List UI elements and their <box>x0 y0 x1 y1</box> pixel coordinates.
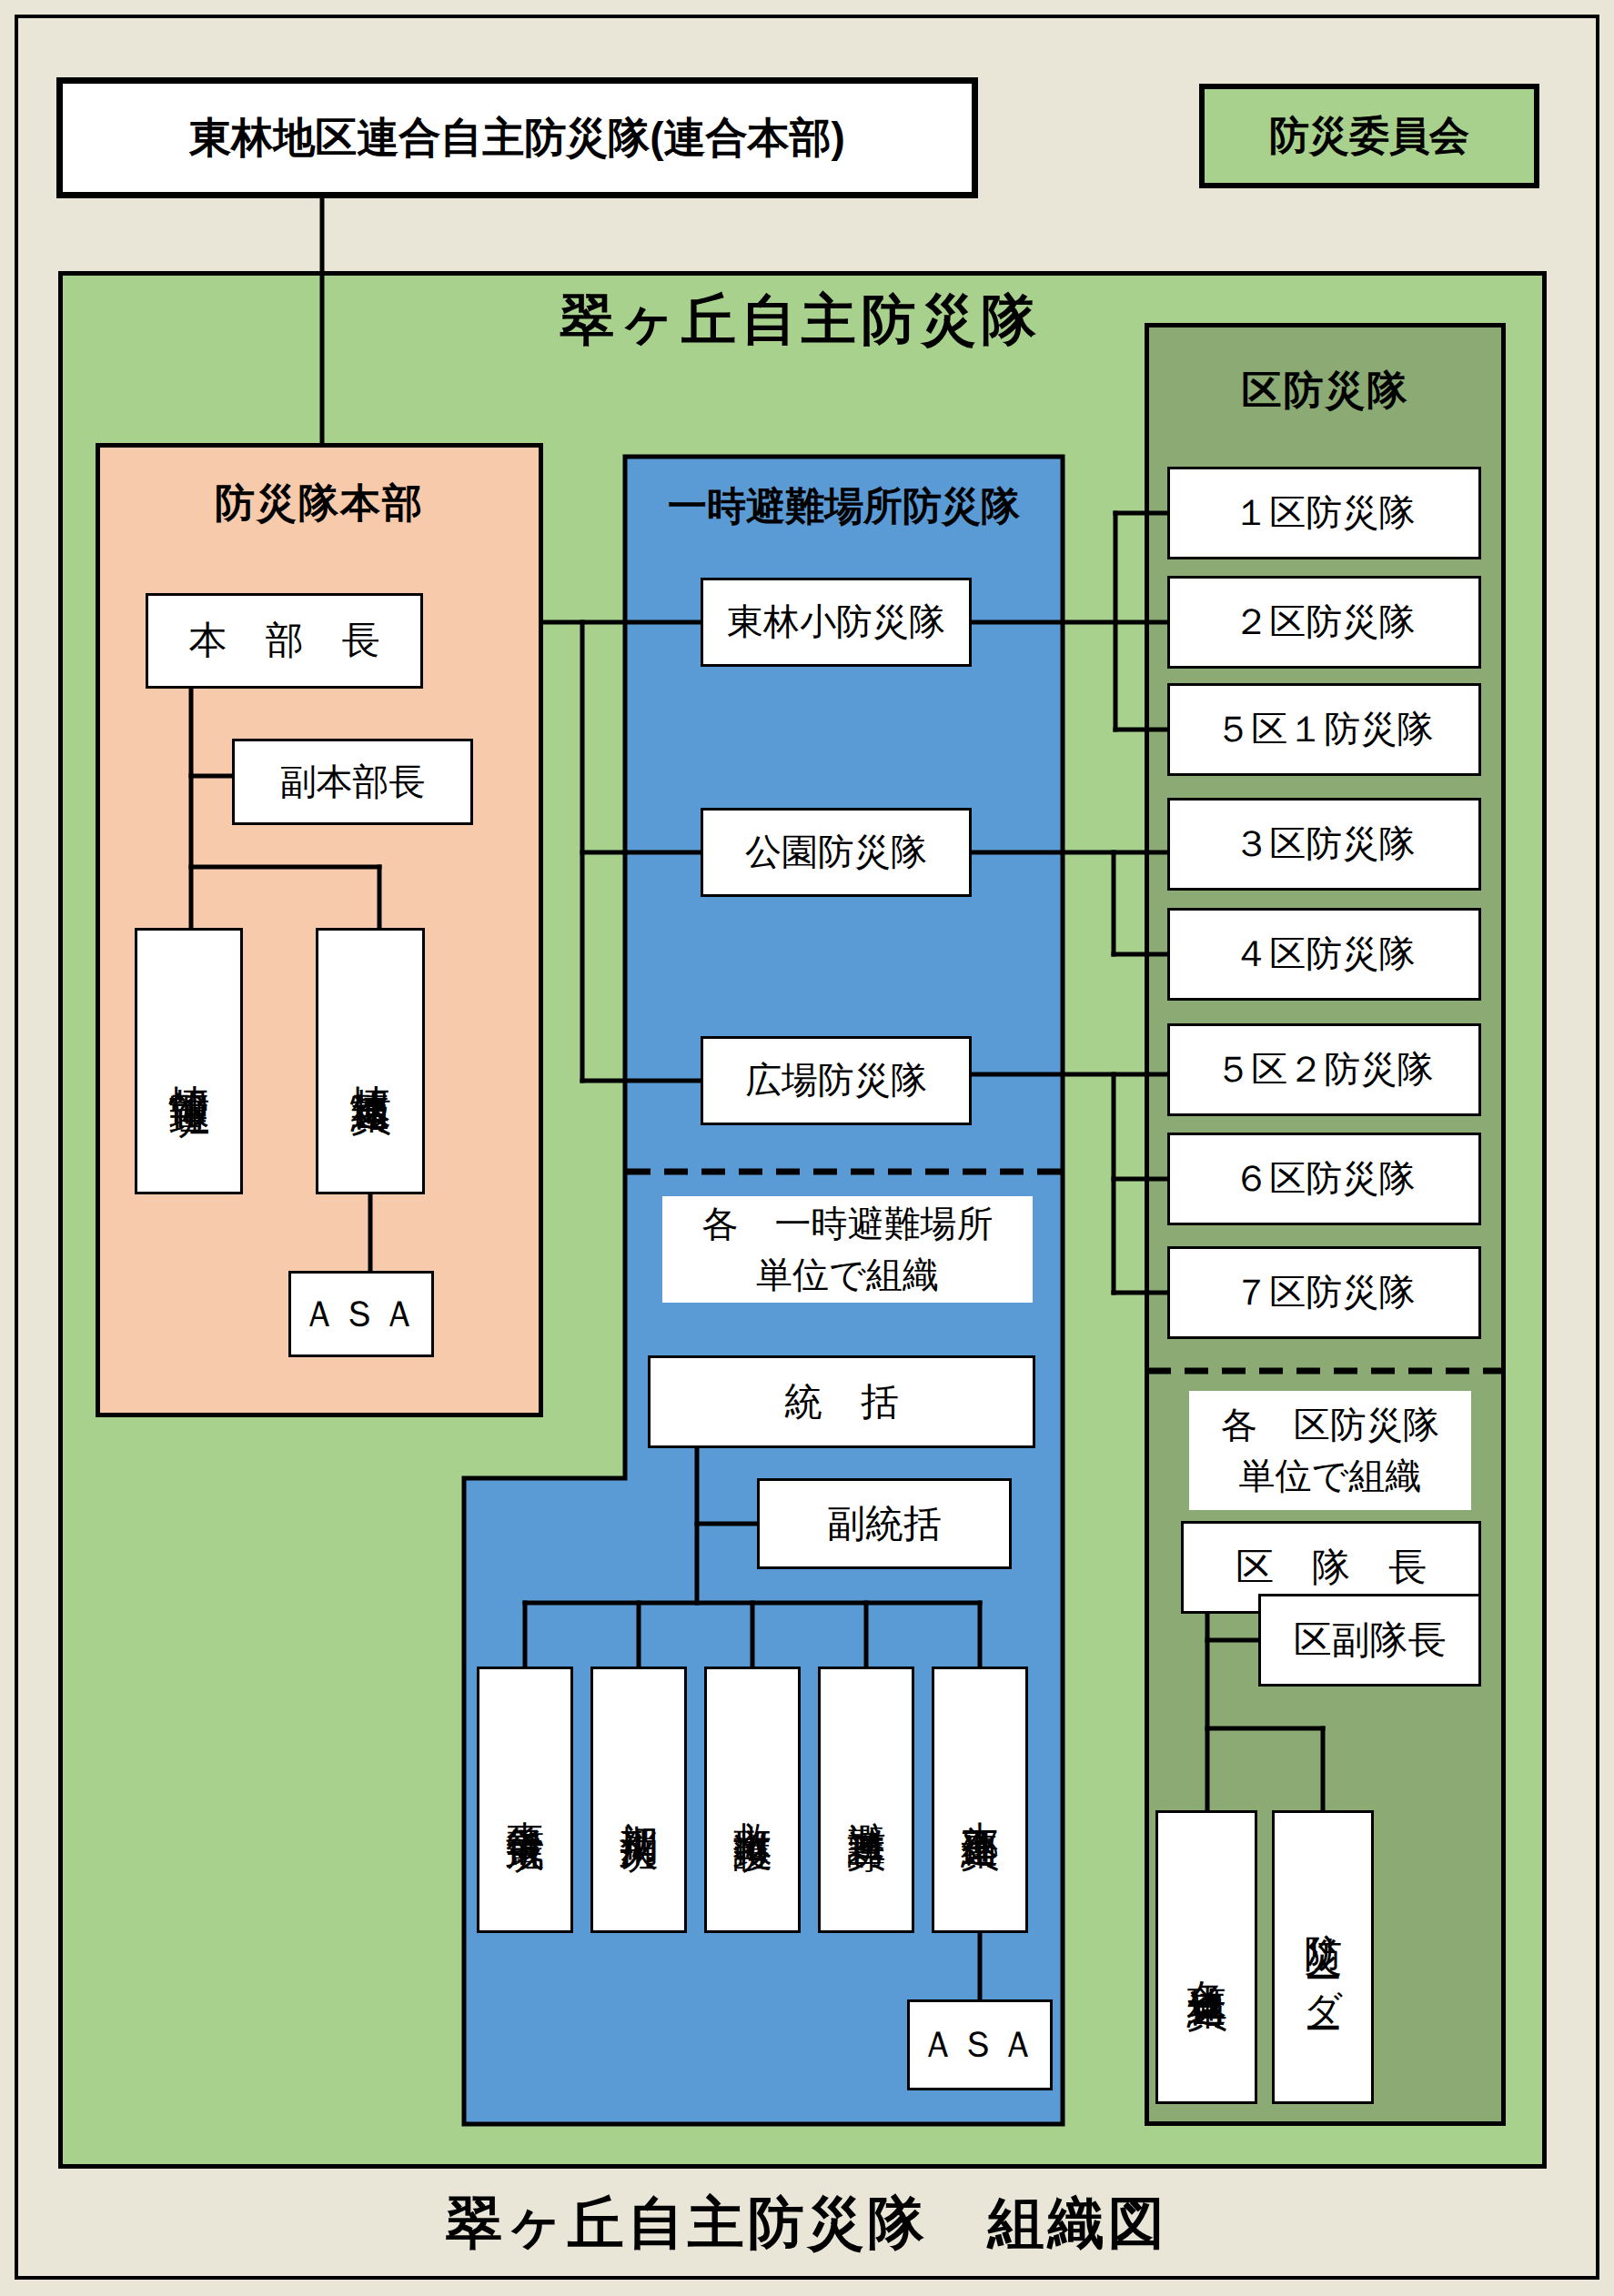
district-title: 区防災隊 <box>1145 364 1506 418</box>
hq-info-liaison-box: 情報連絡員 <box>316 928 425 1194</box>
shelter-team-renraku-box: 本部連絡員 <box>932 1667 1028 1933</box>
shelter-team-shoka-box: 初期消火班 <box>590 1667 687 1933</box>
shelter-deputy-box: 副統括 <box>757 1478 1012 1569</box>
shelter-title: 一時避難場所防災隊 <box>625 480 1063 533</box>
district-unit-5-1-label: ５区１防災隊 <box>1216 709 1434 750</box>
shelter-team-renraku-label: 本部連絡員 <box>958 1791 1002 1809</box>
union-hq-label: 東林地区連合自主防災隊(連合本部) <box>189 114 845 162</box>
district-note-line1: 各 区防災隊 <box>1221 1400 1439 1451</box>
district-unit-7-label: ７区防災隊 <box>1234 1272 1416 1314</box>
district-bousai-leader-label: 防災リーダー <box>1301 1903 1345 2012</box>
district-unit-2-box: ２区防災隊 <box>1167 576 1481 669</box>
hq-deputy-label: 副本部長 <box>280 761 426 803</box>
union-hq-box: 東林地区連合自主防災隊(連合本部) <box>56 77 978 198</box>
shelter-unit-park-label: 公園防災隊 <box>745 831 927 873</box>
hq-deputy-box: 副本部長 <box>232 739 473 825</box>
district-unit-1-label: １区防災隊 <box>1234 492 1416 534</box>
district-unit-4-label: ４区防災隊 <box>1234 933 1416 975</box>
district-note-line2: 単位で組織 <box>1239 1451 1422 1502</box>
shelter-team-keikai-label: 事後警戒班 <box>503 1791 547 1809</box>
hq-info-management-label: 情報管理班 <box>166 1052 212 1071</box>
district-unit-5-2-label: ５区２防災隊 <box>1216 1049 1434 1091</box>
shelter-unit-torin-box: 東林小防災隊 <box>701 578 972 667</box>
main-title: 翠ヶ丘自主防災隊 <box>273 284 1328 357</box>
district-unit-5-2-box: ５区２防災隊 <box>1167 1023 1481 1116</box>
shelter-team-shoka-label: 初期消火班 <box>617 1791 661 1809</box>
district-liaison-label: 各班連絡員 <box>1184 1949 1230 1967</box>
shelter-leader-label: 統 括 <box>784 1380 899 1424</box>
district-deputy-box: 区副隊長 <box>1258 1594 1481 1687</box>
hq-chief-label: 本 部 長 <box>189 619 380 662</box>
bottom-caption: 翠ヶ丘自主防災隊 組織図 <box>261 2185 1353 2261</box>
district-unit-3-label: ３区防災隊 <box>1234 823 1416 865</box>
hq-chief-box: 本 部 長 <box>146 593 423 689</box>
shelter-unit-plaza-label: 広場防災隊 <box>745 1060 927 1102</box>
shelter-note-line2: 単位で組織 <box>756 1250 939 1301</box>
hq-asa-box: ＡＳＡ <box>288 1271 434 1357</box>
shelter-note-line1: 各 一時避難場所 <box>702 1199 994 1250</box>
district-unit-6-box: ６区防災隊 <box>1167 1133 1481 1225</box>
hq-info-liaison-label: 情報連絡員 <box>348 1052 394 1071</box>
shelter-team-keikai-box: 事後警戒班 <box>477 1667 573 1933</box>
shelter-asa-box: ＡＳＡ <box>907 1999 1053 2090</box>
hq-asa-label: ＡＳＡ <box>301 1294 421 1335</box>
district-note-box: 各 区防災隊 単位で組織 <box>1189 1391 1471 1510</box>
hq-info-management-box: 情報管理班 <box>135 928 243 1194</box>
shelter-unit-plaza-box: 広場防災隊 <box>701 1036 972 1125</box>
committee-label: 防災委員会 <box>1269 113 1469 159</box>
shelter-note-box: 各 一時避難場所 単位で組織 <box>662 1196 1033 1303</box>
district-unit-6-label: ６区防災隊 <box>1234 1158 1416 1200</box>
district-deputy-label: 区副隊長 <box>1294 1618 1447 1662</box>
shelter-unit-park-box: 公園防災隊 <box>701 808 972 897</box>
shelter-team-kyugo-box: 救出救護班 <box>704 1667 801 1933</box>
district-unit-5-1-box: ５区１防災隊 <box>1167 683 1481 776</box>
district-bousai-leader-box: 防災リーダー <box>1272 1810 1374 2104</box>
district-unit-3-box: ３区防災隊 <box>1167 798 1481 891</box>
committee-box: 防災委員会 <box>1199 84 1539 188</box>
shelter-unit-torin-label: 東林小防災隊 <box>727 601 945 643</box>
shelter-team-kyugo-label: 救出救護班 <box>731 1791 774 1809</box>
district-unit-2-label: ２区防災隊 <box>1234 601 1416 643</box>
org-chart-page: 東林地区連合自主防災隊(連合本部) 防災委員会 翠ヶ丘自主防災隊 防災隊本部 本… <box>0 0 1614 2296</box>
shelter-leader-box: 統 括 <box>648 1355 1035 1448</box>
shelter-asa-label: ＡＳＡ <box>920 2024 1040 2066</box>
district-unit-7-box: ７区防災隊 <box>1167 1246 1481 1339</box>
district-liaison-box: 各班連絡員 <box>1155 1810 1257 2104</box>
district-unit-4-box: ４区防災隊 <box>1167 908 1481 1001</box>
shelter-team-yudo-label: 避難誘導員 <box>844 1791 888 1809</box>
shelter-team-yudo-box: 避難誘導員 <box>818 1667 914 1933</box>
district-leader-label: 区 隊 長 <box>1236 1546 1427 1589</box>
district-unit-1-box: １区防災隊 <box>1167 467 1481 559</box>
hq-title: 防災隊本部 <box>96 477 543 530</box>
shelter-deputy-label: 副統括 <box>827 1502 942 1546</box>
